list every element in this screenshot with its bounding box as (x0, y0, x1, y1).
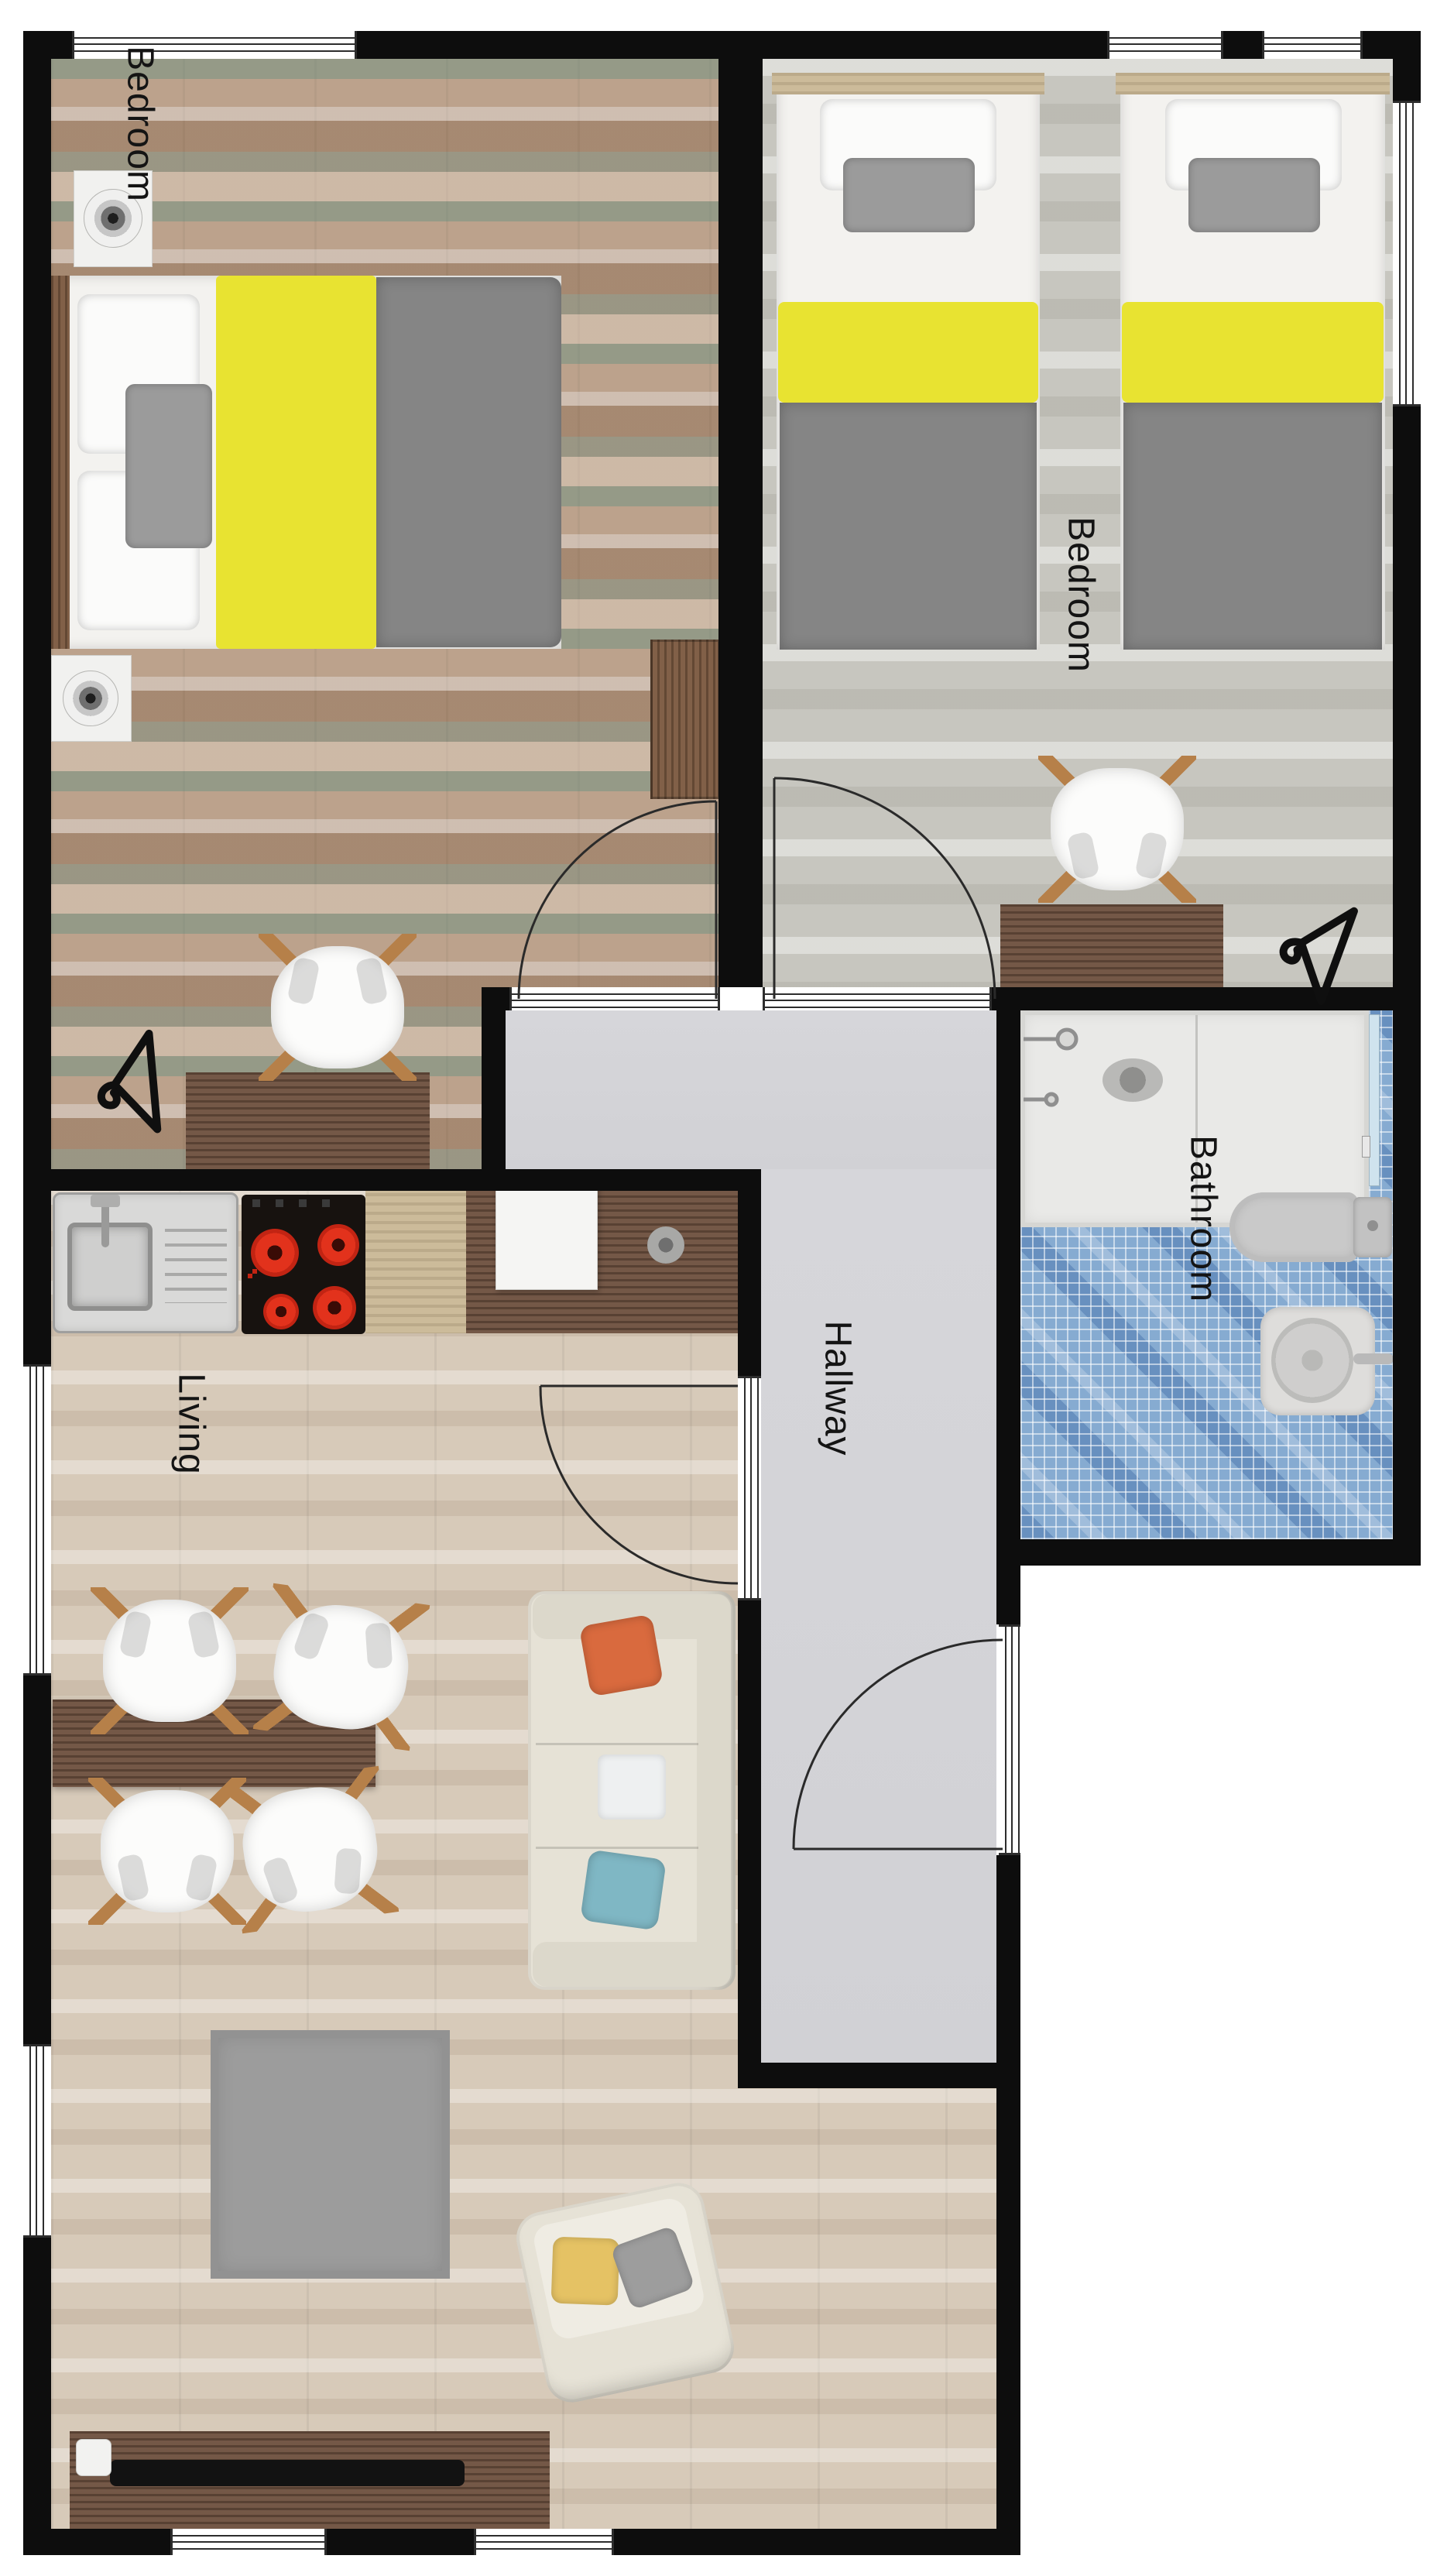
burner (317, 1224, 359, 1266)
wall-hall-left-upper (738, 1169, 761, 1376)
doorway-bedroom-2 (763, 987, 992, 1010)
room-label-bedroom-1: Bedroom (119, 46, 162, 202)
toilet-tank (1353, 1197, 1392, 1257)
wardrobe (650, 640, 720, 799)
sofa-back (697, 1597, 731, 1984)
room-label-bathroom: Bathroom (1182, 1135, 1225, 1302)
sink-bowl (67, 1223, 153, 1311)
armchair-pillow-yellow (551, 2237, 620, 2306)
room-label-bedroom-2: Bedroom (1060, 516, 1103, 673)
bedroom-1-chair (271, 946, 404, 1068)
dining-chair (267, 1597, 416, 1737)
flush-button (1367, 1220, 1378, 1231)
gray-blanket (1123, 403, 1382, 650)
hallway-floor (761, 1169, 996, 2063)
double-bed (51, 276, 561, 649)
chair-shell (1051, 768, 1184, 890)
window-living-left (23, 1364, 51, 1676)
wall-bedroom1-right (482, 987, 506, 1191)
yellow-runner (216, 276, 376, 649)
burner (251, 1229, 299, 1277)
hallway-floor-arm (506, 1010, 996, 1169)
floor-plan: Bedroom Bedroom Bathroom Hallway Living (0, 0, 1430, 2576)
bedroom-1-desk (186, 1072, 430, 1169)
headboard (1116, 73, 1390, 94)
room-label-hallway: Hallway (817, 1320, 859, 1456)
doorway-entry (999, 1624, 1020, 1855)
wall-hall-bottom (738, 2063, 1020, 2088)
sink-faucet-knob (91, 1195, 120, 1207)
yellow-runner (1122, 302, 1384, 403)
sofa-pillow-teal (580, 1849, 667, 1930)
doorway-bedroom-1 (509, 987, 720, 1010)
cooktop-indicator (248, 1269, 257, 1278)
gray-pillow (1188, 158, 1320, 232)
headboard (772, 73, 1044, 94)
wall-hall-right-lower (996, 1855, 1020, 2063)
cutting-board (496, 1180, 598, 1290)
drainer-ribs (165, 1229, 227, 1303)
yellow-runner (778, 302, 1038, 403)
shower-glass-door (1369, 1014, 1380, 1186)
headboard (51, 276, 70, 649)
shower-drain (1103, 1058, 1163, 1102)
wall-hall-right-upper (996, 1566, 1020, 1624)
window-bedroom1-top (72, 31, 357, 59)
wall-bedroom-divider (718, 59, 763, 987)
chair-shell (103, 1600, 236, 1722)
window-bedroom2-top (1107, 31, 1223, 59)
window-living-bottom (170, 2529, 327, 2555)
wall-bathroom-bottom (996, 1539, 1421, 1566)
cushion-seam (536, 1743, 698, 1745)
speaker (76, 2439, 111, 2476)
gray-blanket (376, 277, 561, 647)
doorway-living (738, 1376, 761, 1600)
window-living-bottom-2 (474, 2529, 614, 2555)
chair-shell (271, 946, 404, 1068)
washbasin-bowl (1271, 1318, 1353, 1403)
armchair (512, 2178, 739, 2407)
sofa-pillow-orange (579, 1614, 664, 1696)
twin-bed (777, 73, 1040, 650)
washbasin-faucet (1353, 1353, 1394, 1364)
window-bedroom2-top-2 (1262, 31, 1363, 59)
room-label-living: Living (170, 1373, 213, 1474)
lamp (63, 671, 118, 726)
wall-living-top (23, 1169, 761, 1191)
window-living-left-2 (23, 2044, 51, 2238)
dining-chair (103, 1600, 236, 1722)
burner (313, 1286, 356, 1329)
cooktop-knobs (252, 1199, 345, 1207)
toilet (1229, 1192, 1358, 1262)
window-bedroom2-right (1393, 101, 1421, 406)
twin-bed (1120, 73, 1385, 650)
gray-pillow (125, 384, 212, 548)
pot (647, 1226, 684, 1264)
bedroom-2-chair (1051, 768, 1184, 890)
wall-lower-right (996, 2063, 1020, 2555)
rug (211, 2030, 450, 2279)
dining-chair (236, 1780, 385, 1919)
cushion-seam (536, 1847, 698, 1849)
shower-door-handle (1362, 1136, 1370, 1158)
kitchen-counter-light (365, 1175, 466, 1333)
gray-blanket (780, 403, 1037, 650)
tv (110, 2460, 465, 2486)
wall-bathroom-top (992, 987, 1421, 1010)
gray-pillow (843, 158, 975, 232)
cooktop (242, 1195, 365, 1334)
wall-bathroom-left (996, 987, 1020, 1566)
burner (263, 1294, 299, 1329)
sofa-throw (598, 1754, 666, 1820)
kitchen-sink-unit (53, 1192, 238, 1333)
chair-shell (101, 1790, 234, 1912)
dining-chair (101, 1790, 234, 1912)
wall-hall-left-lower (738, 1600, 761, 2088)
